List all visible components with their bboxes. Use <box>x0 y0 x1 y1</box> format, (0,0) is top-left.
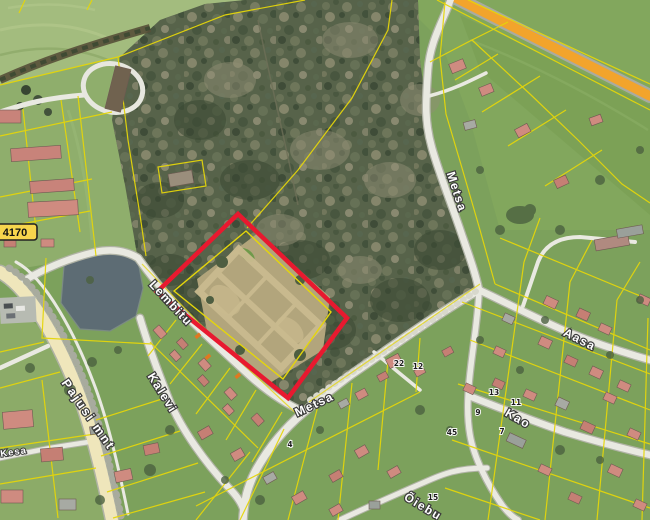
house-number: 4 <box>287 440 292 449</box>
satellite-layer: 4170 Pajusi mnt Lembitu Kalevi Metsa Met… <box>0 0 650 520</box>
house-number: 15 <box>428 493 438 502</box>
house-number: 12 <box>413 362 423 371</box>
house-number: 13 <box>489 388 499 397</box>
road-number-badge: 4170 <box>0 224 37 240</box>
car <box>4 303 13 308</box>
parking-area <box>0 296 37 324</box>
car <box>16 306 25 311</box>
car <box>6 313 15 318</box>
house-number: 11 <box>511 398 521 407</box>
map-canvas[interactable]: 4170 Pajusi mnt Lembitu Kalevi Metsa Met… <box>0 0 650 520</box>
house-number: 7 <box>499 427 504 436</box>
house-number: 22 <box>394 359 404 368</box>
house-number: 9 <box>475 408 480 417</box>
pond <box>61 251 143 331</box>
house-number: 45 <box>447 428 457 437</box>
road-number-text: 4170 <box>3 227 27 239</box>
